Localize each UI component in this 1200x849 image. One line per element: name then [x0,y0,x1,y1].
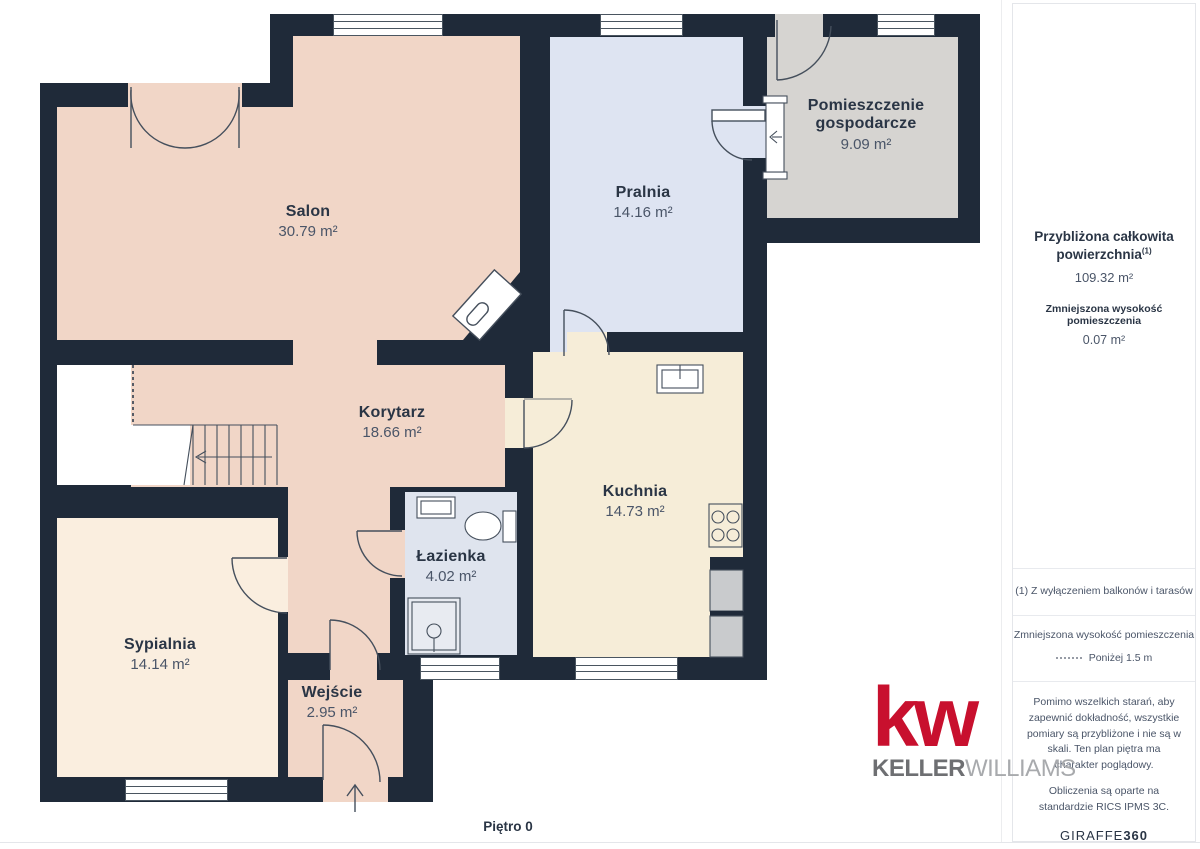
room-label-korytarz: Korytarz18.66 m² [359,404,426,441]
reduced-height-label: Zmniejszona wysokość pomieszczenia [1013,303,1195,327]
floorplan-page: { "floor_label": "Piętro 0", "rooms": { … [0,0,1200,849]
room-label-sypialnia: Sypialnia14.14 m² [124,636,196,673]
room-label-lazienka: Łazienka4.02 m² [416,548,485,585]
room-label-pralnia: Pralnia14.16 m² [613,184,672,221]
stove-icon [453,270,521,340]
floorplan-canvas: Salon30.79 m² Pralnia14.16 m² Pomieszcze… [0,0,1010,849]
door-swing-icon [777,20,831,80]
door-swing-icon [564,310,609,356]
footnote-section: (1) Z wyłączeniem balkonów i tarasów [1013,568,1195,615]
double-door-icon [131,87,239,148]
door-swing-icon [357,531,402,576]
cooktop-icon [709,504,742,547]
legend-value: Poniżej 1.5 m [1089,652,1153,664]
divider [0,842,1200,843]
legend-label: Zmniejszona wysokość pomieszczenia [1013,628,1195,644]
door-swing-icon [232,558,287,613]
entrance-arrow-icon [347,785,363,812]
door-swing-icon [712,110,765,160]
stairs-icon [133,365,277,485]
reduced-height-value: 0.07 m² [1013,333,1195,347]
keller-williams-logo: kw KELLERWILLIAMS [872,682,1092,783]
room-label-kuchnia: Kuchnia14.73 m² [603,483,668,520]
standard-note: Obliczenia są oparte na standardzie RICS… [1026,784,1182,816]
keller-williams-wordmark: KELLERWILLIAMS [872,755,1092,783]
toilet-icon [465,511,516,542]
footnote-text: (1) Z wyłączeniem balkonów i tarasów [1015,584,1192,600]
dotted-line-icon [1056,657,1082,659]
door-swing-icon [330,620,380,670]
vent-duct-icon [763,96,787,179]
total-area-label: Przybliżona całkowita powierzchnia(1) [1013,228,1195,264]
legend-section: Zmniejszona wysokość pomieszczenia Poniż… [1013,615,1195,681]
kw-mark-icon: kw [872,682,1092,753]
total-area-section: Przybliżona całkowita powierzchnia(1) 10… [1013,4,1195,568]
bathroom-sink-icon [417,497,455,518]
door-swing-icon [524,399,572,448]
footnote-mark: (1) [1142,247,1152,256]
kitchen-sink-icon [657,365,703,393]
giraffe360-brand: GIRAFFE360 [1026,828,1182,843]
legend-entry: Poniżej 1.5 m [1013,652,1195,664]
floor-caption: Piętro 0 [438,819,578,834]
total-area-value: 109.32 m² [1013,270,1195,285]
room-label-wejscie: Wejście2.95 m² [302,684,363,721]
shower-icon [408,598,460,654]
entrance-door-icon [323,725,380,782]
room-label-gospodarcze: Pomieszczenie gospodarcze9.09 m² [791,97,941,153]
appliance-icon [710,557,743,657]
room-label-salon: Salon30.79 m² [278,203,337,240]
